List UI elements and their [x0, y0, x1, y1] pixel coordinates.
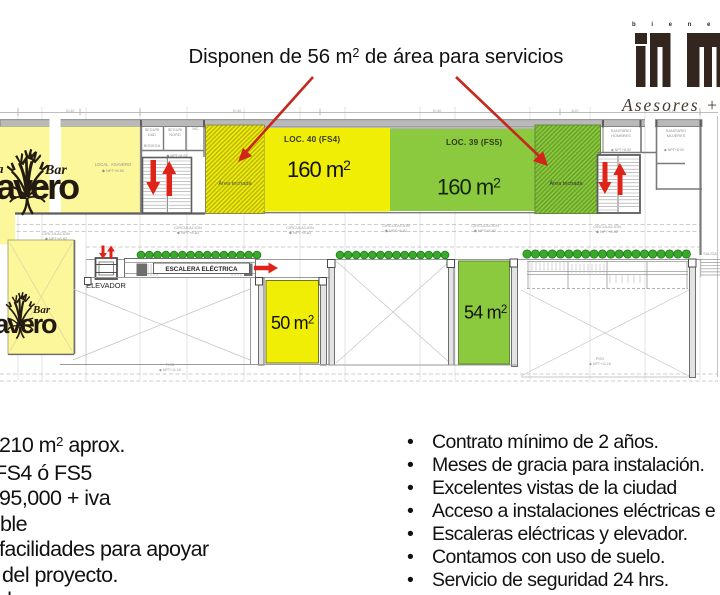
svg-text:50 m2: 50 m2: [271, 313, 314, 333]
svg-text:PISO: PISO: [166, 363, 175, 367]
svg-text:ESCALERA ELÉCTRICA: ESCALERA ELÉCTRICA: [165, 264, 238, 273]
svg-text:◆ NPT+8.82: ◆ NPT+8.82: [385, 228, 408, 233]
svg-text:160 m2: 160 m2: [287, 157, 351, 182]
svg-text:ELEVADOR: ELEVADOR: [86, 281, 126, 290]
svg-text:Bar: Bar: [32, 304, 51, 316]
svg-text:PISO: PISO: [596, 357, 605, 361]
svg-text:◆ NPT+8.92: ◆ NPT+8.92: [102, 168, 125, 173]
svg-text:NORD: NORD: [169, 133, 180, 137]
svg-text:◆ NPT+8.92: ◆ NPT+8.92: [611, 148, 631, 152]
svg-text:SEGURI: SEGURI: [168, 128, 183, 132]
svg-text:MC.: MC.: [193, 127, 200, 131]
svg-text:◆ NPT+11.16: ◆ NPT+11.16: [159, 368, 181, 372]
svg-text:10.40: 10.40: [66, 109, 75, 113]
svg-text:Área techada: Área techada: [549, 180, 583, 187]
svg-text:◆ NPT+8.82: ◆ NPT+8.82: [596, 229, 619, 234]
svg-text:◆ NPT+8.82: ◆ NPT+8.82: [177, 230, 200, 235]
svg-text:◆ NPT+11.16: ◆ NPT+11.16: [589, 362, 611, 366]
svg-text:SALIDA: SALIDA: [703, 252, 717, 256]
svg-text:8.20: 8.20: [572, 109, 579, 113]
svg-text:160 m2: 160 m2: [437, 175, 501, 200]
svg-text:b i e n e s r a: b i e n e s r a: [632, 22, 720, 28]
svg-text:DAD: DAD: [148, 133, 156, 137]
svg-text:a: a: [0, 161, 4, 176]
svg-text:◆ NPT+8.92: ◆ NPT+8.92: [664, 148, 684, 152]
svg-text:10.40: 10.40: [433, 109, 442, 113]
svg-text:HOMBRES: HOMBRES: [611, 133, 631, 138]
svg-text:SEGURI: SEGURI: [145, 128, 160, 132]
svg-text:LOCAL AGAVERO: LOCAL AGAVERO: [95, 162, 132, 167]
svg-text:Área techada: Área techada: [218, 180, 252, 187]
svg-text:◆ NPT+8.82: ◆ NPT+8.82: [289, 230, 312, 235]
svg-text:54 m2: 54 m2: [464, 303, 507, 323]
svg-text:LOC. 40 (FS4): LOC. 40 (FS4): [284, 135, 340, 144]
svg-text:10.40: 10.40: [233, 109, 242, 113]
svg-text:Asesores +: Asesores +: [621, 95, 720, 115]
svg-text:◆ NPT+8.82: ◆ NPT+8.82: [474, 228, 497, 233]
svg-text:MUJERES: MUJERES: [667, 133, 686, 138]
svg-text:BODEGA: BODEGA: [144, 144, 161, 148]
svg-text:LOC. 39 (FS5): LOC. 39 (FS5): [446, 138, 502, 147]
